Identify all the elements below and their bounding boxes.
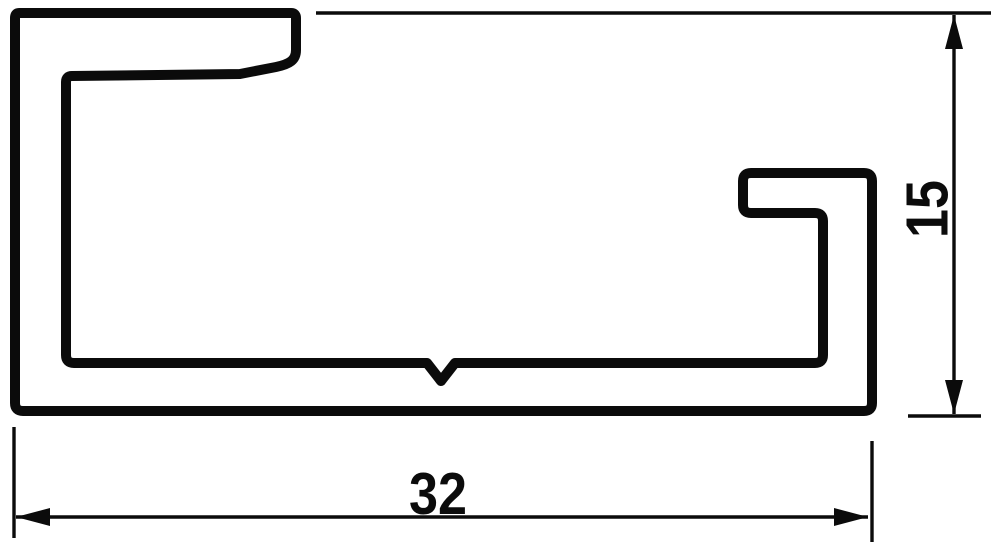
- svg-text:15: 15: [895, 180, 961, 238]
- svg-text:32: 32: [409, 461, 467, 527]
